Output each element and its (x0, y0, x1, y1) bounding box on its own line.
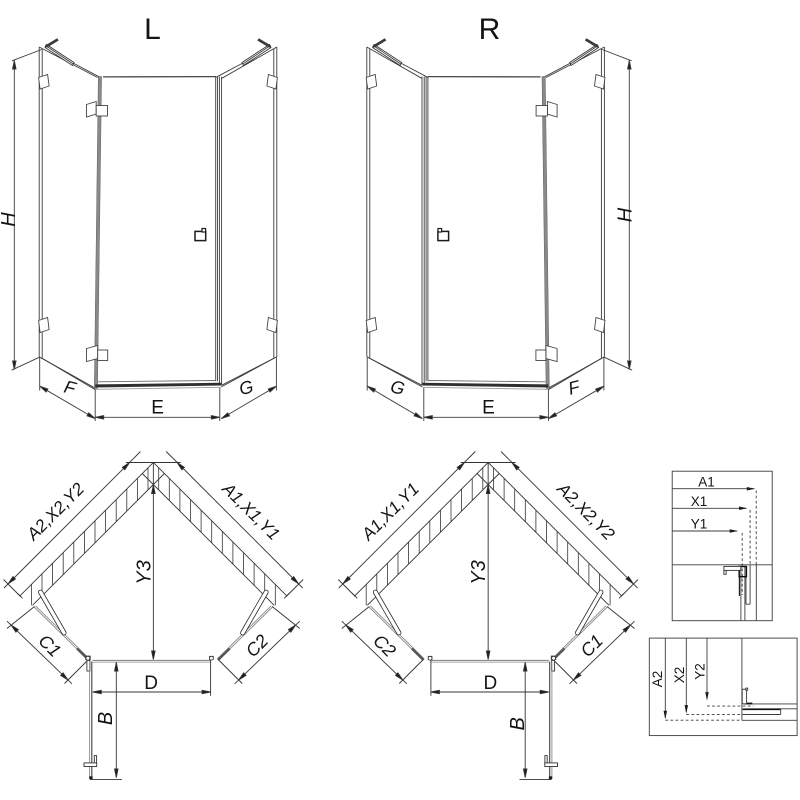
svg-text:Y2: Y2 (693, 663, 708, 680)
svg-text:B: B (95, 712, 117, 725)
svg-text:Y3: Y3 (468, 560, 490, 584)
svg-text:E: E (151, 398, 164, 419)
svg-text:G: G (237, 376, 255, 399)
svg-text:D: D (484, 673, 498, 694)
svg-text:A1,X1,Y1: A1,X1,Y1 (357, 479, 423, 545)
svg-text:H: H (0, 212, 20, 227)
svg-text:A1: A1 (698, 475, 715, 490)
svg-text:Y1: Y1 (691, 517, 708, 532)
svg-text:C1: C1 (35, 631, 65, 661)
svg-text:F: F (566, 376, 582, 398)
svg-text:Y3: Y3 (134, 560, 156, 584)
svg-text:C2: C2 (242, 631, 272, 661)
svg-text:F: F (62, 377, 78, 399)
svg-text:C2: C2 (369, 631, 399, 661)
svg-text:C1: C1 (577, 631, 607, 661)
svg-text:H: H (615, 207, 637, 222)
svg-text:E: E (482, 398, 495, 419)
svg-text:A2: A2 (650, 671, 665, 688)
svg-text:A2,X2,Y2: A2,X2,Y2 (553, 478, 620, 545)
svg-text:A1,X1,Y1: A1,X1,Y1 (218, 478, 284, 544)
svg-text:X1: X1 (691, 494, 708, 509)
svg-text:L: L (144, 13, 161, 46)
svg-text:B: B (507, 717, 529, 730)
svg-text:G: G (388, 376, 406, 399)
svg-text:A2,X2,Y2: A2,X2,Y2 (22, 478, 89, 545)
svg-text:R: R (479, 13, 501, 46)
svg-text:D: D (144, 673, 158, 694)
svg-text:X2: X2 (672, 667, 687, 684)
